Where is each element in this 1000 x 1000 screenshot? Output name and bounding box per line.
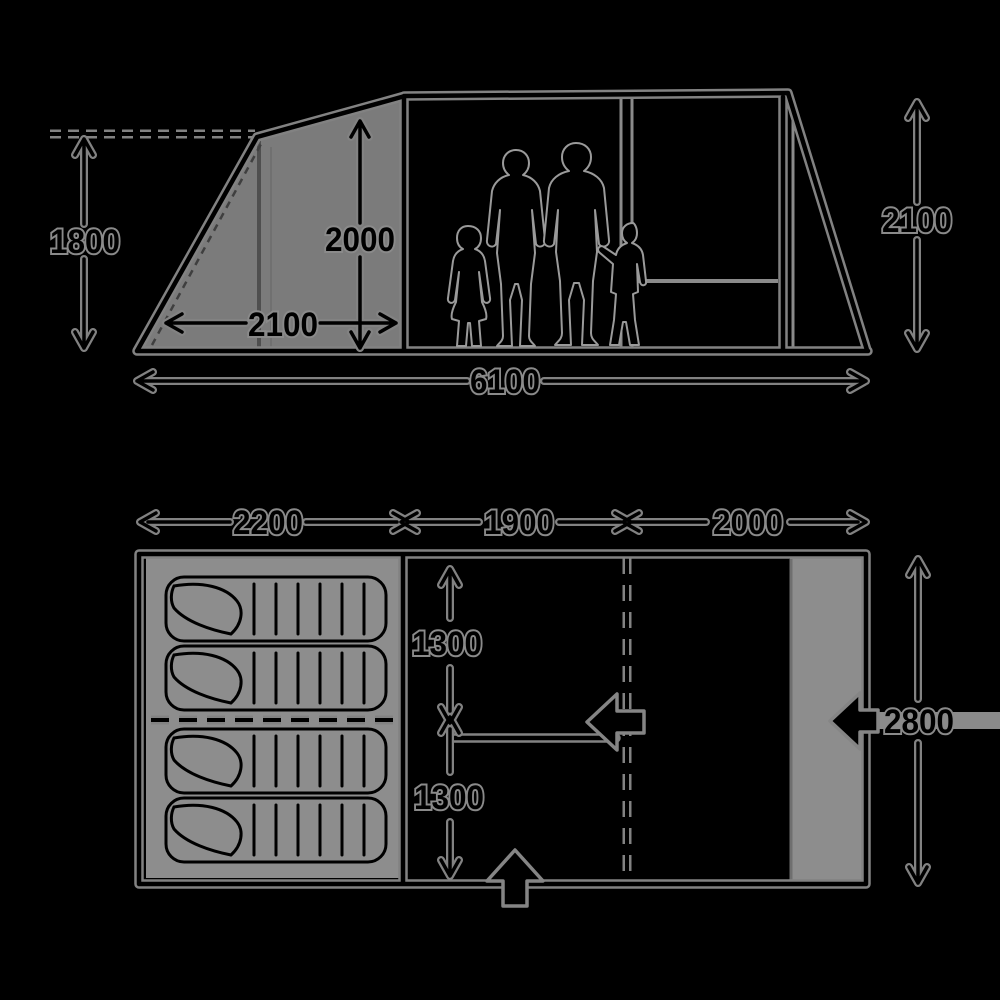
bed-depth-lower-label: 1300 — [414, 779, 484, 817]
diagram-svg: 1800 2000 2100 6100 2100 2200 1900 2000 — [0, 0, 1000, 1000]
man-silhouette — [544, 143, 609, 345]
family-silhouettes — [448, 143, 646, 346]
front-length-label: 2000 — [713, 504, 783, 542]
floor-plan-view: 2200 1900 2000 1300 1300 2800 — [139, 504, 1000, 906]
max-height-label: 2100 — [882, 202, 952, 240]
teen-girl-silhouette — [448, 226, 490, 346]
side-elevation-view: 1800 2000 2100 6100 2100 — [50, 93, 952, 401]
total-width-label: 2800 — [884, 703, 954, 741]
bed-depth-upper-label: 1300 — [412, 625, 482, 663]
tent-dimension-diagram: 1800 2000 2100 6100 2100 2200 1900 2000 — [0, 0, 1000, 1000]
living-length-label: 1900 — [484, 504, 554, 542]
bedroom-length-label: 2200 — [233, 504, 303, 542]
front-depth-label: 2100 — [248, 306, 318, 344]
total-length-label: 6100 — [470, 363, 540, 401]
inner-height-label: 2000 — [325, 221, 395, 259]
front-height-label: 1800 — [50, 223, 120, 261]
woman-silhouette — [487, 150, 545, 346]
front-door-arrow-icon — [487, 850, 543, 906]
